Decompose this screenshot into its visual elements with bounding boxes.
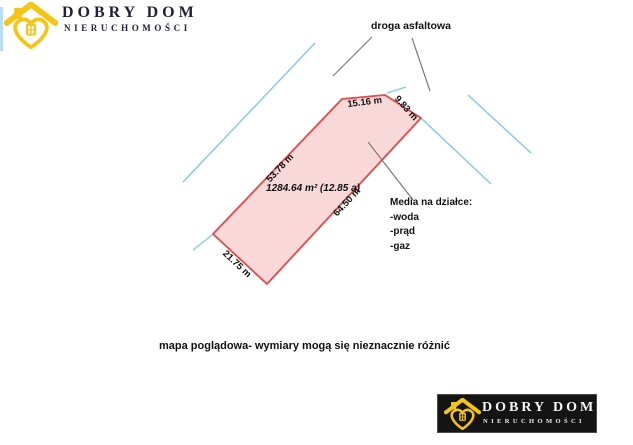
road-label: droga asfaltowa	[371, 20, 451, 32]
agency-name-footer: DOBRY DOM	[482, 400, 596, 416]
media-item-gas: -gaz	[390, 240, 472, 255]
plot-listing-image: { "brand": { "name": "DOBRY DOM", "tagli…	[0, 0, 633, 445]
road-pointer-left	[333, 37, 372, 76]
map-disclaimer: mapa poglądowa- wymiary mogą się nieznac…	[159, 340, 450, 352]
media-title: Media na działce:	[390, 196, 472, 211]
media-item-water: -woda	[390, 211, 472, 226]
road-line-top	[387, 87, 406, 93]
plot-map: 15.16 m 9.83 m 53.78 m 64.50 m 21.75 m 1…	[0, 0, 633, 445]
media-item-power: -prąd	[390, 225, 472, 240]
media-list: Media na działce: -woda -prąd -gaz	[390, 196, 472, 254]
road-pointer-right	[412, 38, 430, 91]
house-heart-icon-footer	[444, 398, 481, 430]
agency-tagline-footer: NIERUCHOMOŚCI	[483, 418, 585, 425]
road-line-right-inner	[421, 118, 491, 184]
agency-logo-footer: DOBRY DOM NIERUCHOMOŚCI	[437, 394, 597, 433]
road-line-right-outer	[468, 95, 531, 153]
area-label: 1284.64 m² (12.85 a)	[266, 183, 361, 194]
